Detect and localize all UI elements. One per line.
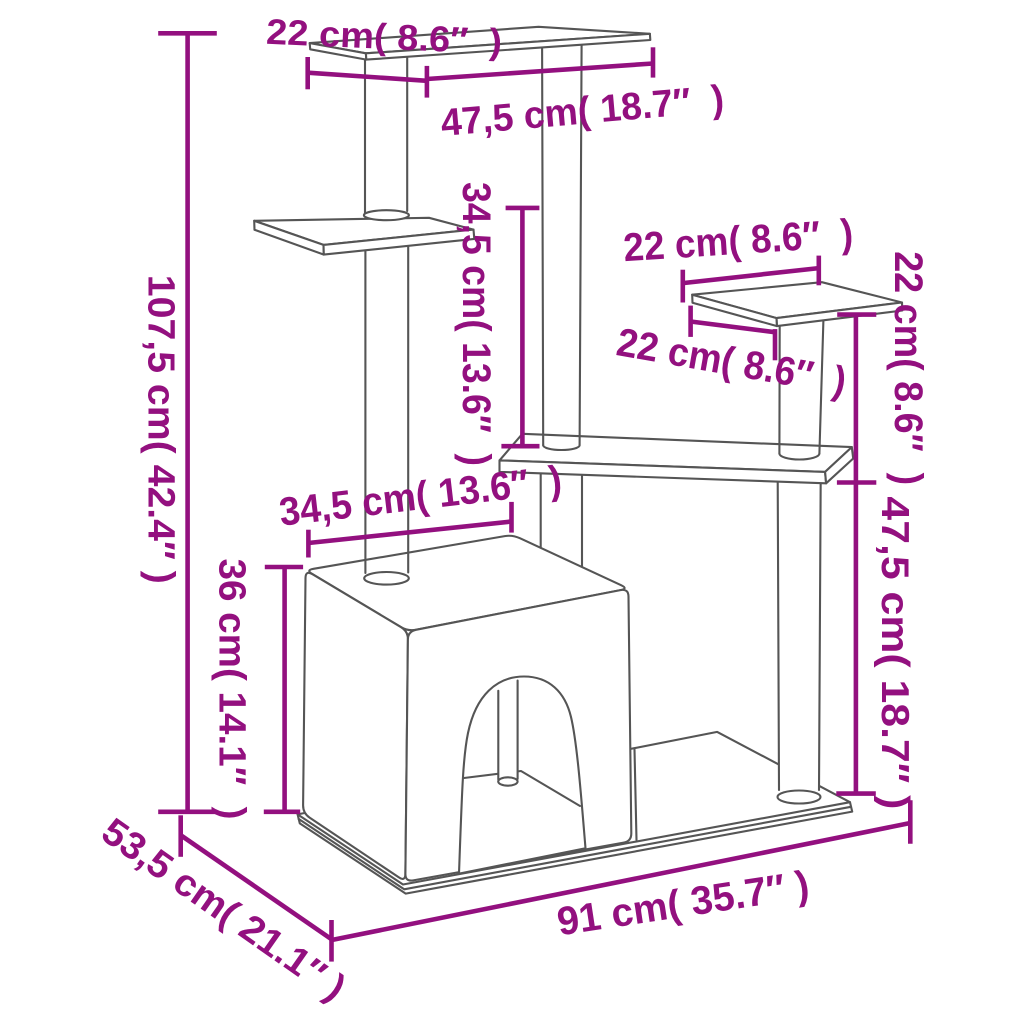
svg-text:22 cm( 8.6″ ): 22 cm( 8.6″ ) [886,251,930,485]
svg-text:36 cm( 14.1″ ): 36 cm( 14.1″ ) [210,559,252,820]
svg-text:107,5 cm( 42.4″ ): 107,5 cm( 42.4″ ) [140,275,182,584]
svg-text:34,5 cm( 13.6″ ): 34,5 cm( 13.6″ ) [454,182,498,466]
svg-text:47,5 cm( 18.7″ ): 47,5 cm( 18.7″ ) [873,496,916,809]
